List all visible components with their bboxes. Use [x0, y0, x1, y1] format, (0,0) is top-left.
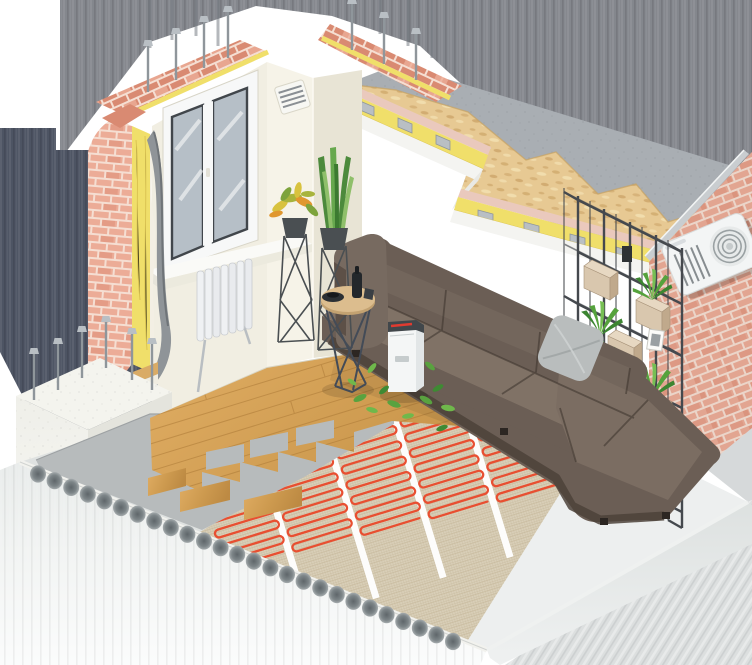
- room-illustration: [0, 0, 752, 665]
- bottle: [352, 272, 362, 298]
- window-pane-right: [213, 88, 247, 242]
- shelf-dark-object: [622, 246, 632, 262]
- radiator-sections: [197, 259, 252, 341]
- plant-pot: [282, 218, 308, 238]
- window-handle: [206, 168, 210, 177]
- cup: [364, 288, 375, 300]
- purifier-logo: [395, 356, 409, 362]
- brick-layer: [88, 118, 132, 396]
- window-pane-left: [172, 105, 203, 259]
- mineral-wool-layer: [132, 126, 150, 372]
- scene: [0, 0, 752, 665]
- shelf-picture-frame: [647, 329, 665, 351]
